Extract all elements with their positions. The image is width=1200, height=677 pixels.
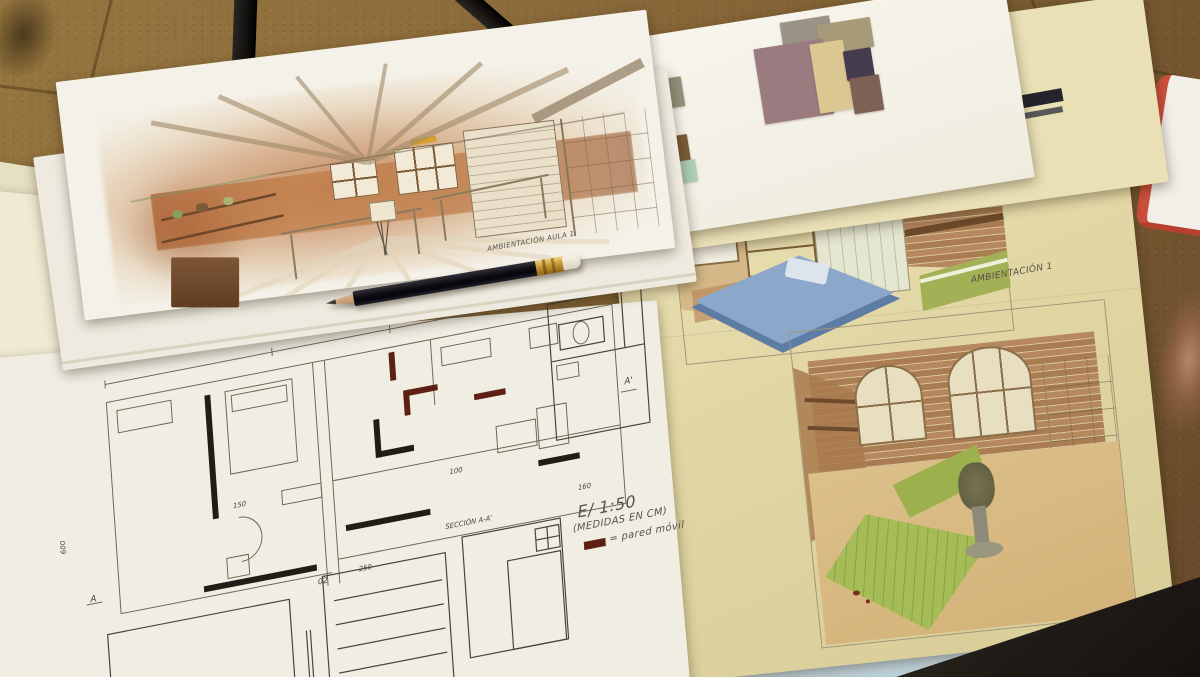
pencil-lead [326, 299, 337, 306]
axis-label-a: A [90, 594, 97, 605]
swatch-cluster-mauve [750, 6, 907, 146]
swatch-cocoa [849, 74, 884, 114]
axis-label-a-prime: A' [624, 376, 633, 388]
door-number: 02 [318, 576, 329, 587]
shelf-line [748, 244, 814, 253]
photo-design-sketches-on-table: AMBIENTACIÓN 2 [0, 0, 1200, 677]
pencil-eraser [562, 255, 582, 271]
dark-cabinet [171, 257, 239, 307]
easel-board [369, 200, 397, 223]
studio-watercolor-sketch [788, 299, 1137, 648]
dim-600: 600 [59, 540, 68, 555]
pencil-wood-tip [325, 293, 356, 309]
